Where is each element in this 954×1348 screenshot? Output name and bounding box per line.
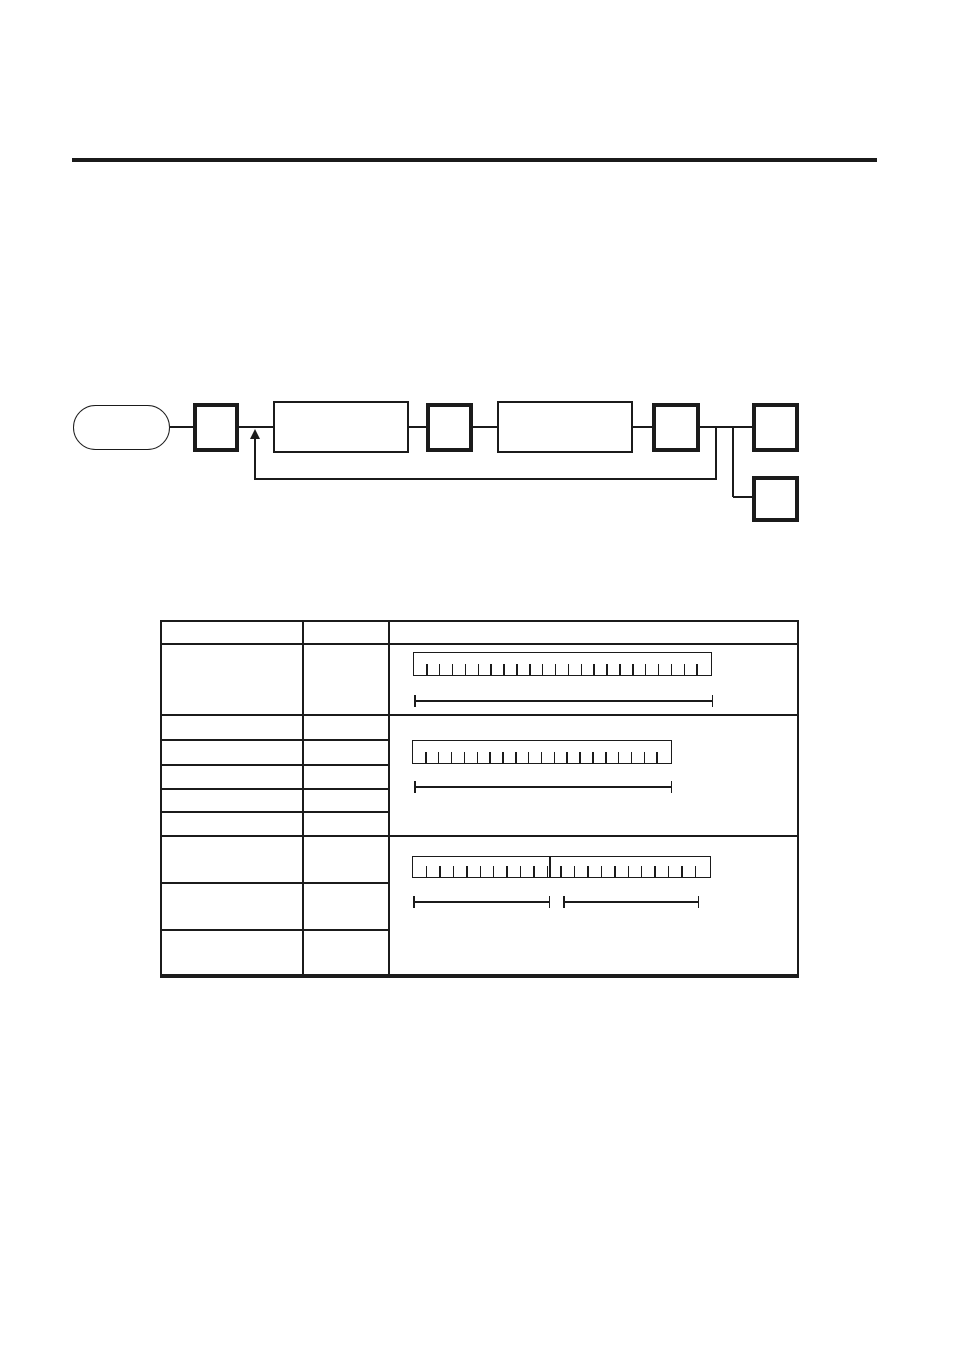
- page: [0, 0, 954, 1348]
- process-box-1: [273, 401, 409, 453]
- dimension-line-bar: [563, 901, 699, 903]
- ruler-tick: [654, 866, 656, 877]
- ruler-tick: [593, 664, 595, 675]
- ruler-divider: [549, 857, 551, 877]
- connector-line: [732, 427, 735, 497]
- ruler-tick: [587, 866, 589, 877]
- dimension-line-cap: [671, 781, 673, 793]
- table-column-separator: [388, 622, 390, 974]
- ruler-tick: [641, 866, 643, 877]
- process-box-2: [497, 401, 633, 453]
- ruler-tick: [502, 752, 504, 763]
- ruler-tick: [631, 752, 633, 763]
- ruler-tick: [533, 866, 535, 877]
- ruler-tick: [554, 752, 556, 763]
- ruler-tick: [466, 866, 468, 877]
- ruler-tick: [542, 664, 544, 675]
- dimension-line-cap: [414, 695, 416, 707]
- ruler-tick: [671, 664, 673, 675]
- ruler-tick: [529, 664, 531, 675]
- feedback-arrowhead-icon: [250, 429, 260, 439]
- ruler-tick: [493, 866, 495, 877]
- ruler-tick: [645, 664, 647, 675]
- ruler-tick: [560, 866, 562, 877]
- dimension-line-cap: [549, 896, 551, 908]
- dimension-line-bar: [414, 700, 713, 702]
- ruler-tick: [506, 866, 508, 877]
- connector-line: [170, 426, 193, 429]
- ruler-tick: [684, 664, 686, 675]
- ruler-tick: [668, 866, 670, 877]
- ruler-tick: [439, 866, 441, 877]
- ruler-tick: [503, 664, 505, 675]
- table-row-separator: [162, 835, 797, 837]
- ruler-tick: [464, 752, 466, 763]
- table-row-separator: [162, 811, 390, 813]
- ruler-tick: [426, 866, 428, 877]
- ruler-tick: [426, 664, 428, 675]
- ruler-tick: [695, 866, 697, 877]
- ruler-tick: [656, 752, 658, 763]
- dimension-line-2: [414, 781, 672, 793]
- ruler-tick: [465, 664, 467, 675]
- connector-line: [700, 426, 752, 429]
- ruler-tick: [619, 664, 621, 675]
- dimension-line-bar: [413, 901, 550, 903]
- connector-line: [715, 427, 717, 480]
- key-box-5: [752, 476, 799, 522]
- dimension-line-3-right: [563, 896, 699, 908]
- flowchart: [0, 0, 954, 560]
- dimension-line-bar: [414, 786, 672, 788]
- ruler-tick: [566, 752, 568, 763]
- scale-ruler-3: [412, 856, 711, 878]
- ruler-tick: [632, 664, 634, 675]
- table-row-separator: [162, 714, 797, 716]
- table-row-separator: [162, 788, 390, 790]
- ruler-tick: [592, 752, 594, 763]
- table-row-separator: [162, 764, 390, 766]
- connector-line: [239, 426, 273, 429]
- ruler-tick: [489, 752, 491, 763]
- key-box-1: [193, 403, 239, 452]
- ruler-tick: [628, 866, 630, 877]
- scale-ruler-2: [412, 740, 672, 764]
- scale-ruler-1: [413, 652, 712, 676]
- key-box-2: [426, 403, 473, 452]
- key-box-3: [652, 403, 700, 452]
- ruler-tick: [601, 866, 603, 877]
- ruler-tick: [541, 752, 543, 763]
- ruler-tick: [618, 752, 620, 763]
- ruler-tick: [681, 866, 683, 877]
- table-column-separator: [302, 622, 304, 974]
- ruler-tick: [438, 752, 440, 763]
- connector-line: [255, 478, 717, 480]
- ruler-tick: [452, 664, 454, 675]
- table-row-separator: [162, 929, 390, 931]
- connector-line: [473, 426, 497, 429]
- table-row-separator: [162, 882, 390, 884]
- ruler-tick: [644, 752, 646, 763]
- ruler-tick: [658, 664, 660, 675]
- ruler-tick: [439, 664, 441, 675]
- ruler-tick: [581, 664, 583, 675]
- ruler-tick: [574, 866, 576, 877]
- ruler-tick: [451, 752, 453, 763]
- connector-line: [633, 426, 652, 429]
- connector-line: [254, 438, 256, 480]
- ruler-tick: [425, 752, 427, 763]
- dimension-line-cap: [712, 695, 714, 707]
- ruler-tick: [696, 664, 698, 675]
- table-row-separator: [162, 643, 797, 645]
- dimension-line-1: [414, 695, 713, 707]
- dimension-line-cap: [698, 896, 700, 908]
- ruler-tick: [477, 752, 479, 763]
- table-row-separator: [162, 739, 390, 741]
- start-terminator: [73, 405, 170, 450]
- ruler-tick: [605, 752, 607, 763]
- ruler-tick: [478, 664, 480, 675]
- ruler-tick: [555, 664, 557, 675]
- connector-line: [733, 496, 752, 499]
- ruler-tick: [516, 664, 518, 675]
- ruler-tick: [568, 664, 570, 675]
- ruler-tick: [490, 664, 492, 675]
- dimension-line-3-left: [413, 896, 550, 908]
- ruler-tick: [520, 866, 522, 877]
- connector-line: [409, 426, 426, 429]
- ruler-tick: [528, 752, 530, 763]
- key-box-4: [752, 403, 799, 452]
- ruler-tick: [515, 752, 517, 763]
- dimension-line-cap: [563, 896, 565, 908]
- ruler-tick: [453, 866, 455, 877]
- ruler-tick: [579, 752, 581, 763]
- ruler-tick: [480, 866, 482, 877]
- ruler-tick: [606, 664, 608, 675]
- ruler-tick: [614, 866, 616, 877]
- dimension-line-cap: [414, 781, 416, 793]
- dimension-line-cap: [413, 896, 415, 908]
- spec-table: [160, 620, 799, 978]
